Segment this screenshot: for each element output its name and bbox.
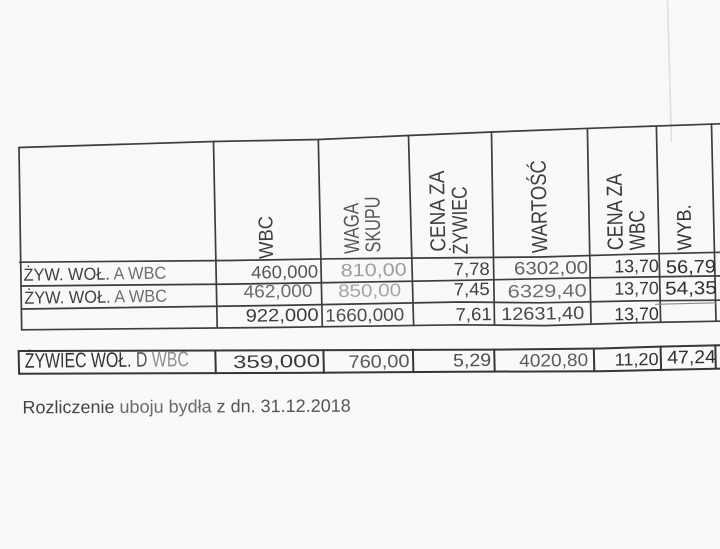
- svg-text:4020,80: 4020,80: [519, 350, 588, 371]
- svg-text:ŻYW. WOŁ. A WBC: ŻYW. WOŁ. A WBC: [24, 286, 167, 308]
- svg-text:7,61: 7,61: [455, 304, 491, 325]
- svg-text:ŻYW. WOŁ. A WBC: ŻYW. WOŁ. A WBC: [23, 263, 166, 285]
- svg-text:56,79: 56,79: [666, 256, 716, 278]
- svg-text:1660,000: 1660,000: [325, 305, 404, 326]
- svg-text:5,29: 5,29: [453, 350, 491, 371]
- svg-text:ŻYWIEC WOŁ. D WBC: ŻYWIEC WOŁ. D WBC: [25, 347, 189, 372]
- svg-text:850,00: 850,00: [338, 280, 401, 301]
- svg-text:Rozliczenie uboju bydła z dn.: Rozliczenie uboju bydła z dn. 31.12.2018: [22, 396, 350, 418]
- svg-text:11,20: 11,20: [614, 349, 659, 370]
- svg-text:922,000: 922,000: [245, 305, 318, 326]
- svg-text:13,70: 13,70: [614, 256, 659, 277]
- svg-text:6329,40: 6329,40: [508, 280, 587, 301]
- svg-text:WYB.: WYB.: [674, 204, 697, 250]
- svg-text:CENA ZA: CENA ZA: [425, 170, 450, 252]
- svg-text:359,000: 359,000: [233, 351, 320, 372]
- svg-text:13,70: 13,70: [614, 278, 659, 299]
- svg-text:6302,00: 6302,00: [514, 257, 588, 278]
- svg-text:810,00: 810,00: [340, 260, 406, 281]
- svg-text:7,78: 7,78: [454, 259, 490, 280]
- svg-text:ŻYWIEC: ŻYWIEC: [448, 186, 473, 254]
- svg-text:13,70: 13,70: [614, 304, 659, 325]
- svg-text:12631,40: 12631,40: [501, 303, 584, 324]
- svg-text:WBC: WBC: [255, 216, 278, 259]
- svg-text:760,00: 760,00: [348, 351, 409, 372]
- svg-text:47,24: 47,24: [667, 346, 716, 368]
- svg-text:WBC: WBC: [624, 210, 650, 251]
- svg-text:WARTOŚĆ: WARTOŚĆ: [526, 160, 553, 254]
- svg-text:462,000: 462,000: [243, 281, 312, 302]
- svg-text:SKUPU: SKUPU: [360, 196, 385, 252]
- svg-text:460,000: 460,000: [251, 262, 318, 283]
- svg-text:54,35: 54,35: [665, 277, 717, 299]
- svg-text:7,45: 7,45: [454, 279, 490, 300]
